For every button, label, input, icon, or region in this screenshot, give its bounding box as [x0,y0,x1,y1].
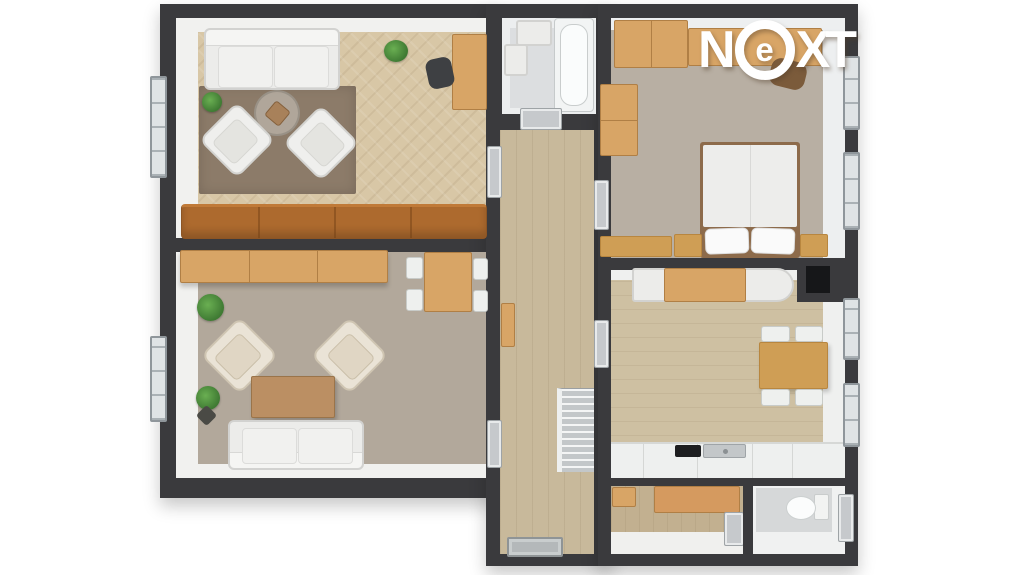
duvet-seam [750,145,751,227]
dining-chair [795,389,823,406]
bathroom-door [520,108,562,130]
kitchen-sink [703,444,746,458]
counter-seam [752,444,753,478]
next-logo: N e X T [698,20,852,80]
plant-icon [384,40,408,62]
dining-chair [795,326,823,342]
wall-closet-wc [743,486,753,554]
window-kitchen-right-2 [843,383,860,447]
bed-duvet [703,145,797,227]
armchair-seat [212,117,260,165]
dining-table [759,342,828,389]
table-chair [473,258,488,280]
counter-seam [792,444,793,478]
door-hall-bedroom [594,180,609,230]
sofa-cushion [298,428,353,464]
fireplace-unit [806,266,830,293]
room-closet [611,486,743,554]
closet-door [724,512,744,546]
table-chair [406,289,423,311]
toilet-bowl [786,496,816,520]
bed-pillow [705,227,750,255]
bathtub-basin [560,24,588,106]
armchair-seat [213,332,262,381]
bedroom-wardrobe [614,20,688,68]
sofa-seam [334,207,336,238]
wardrobe-seam [249,251,250,282]
kitchen-counter [611,442,845,478]
living-desk [452,34,487,110]
living-sofa [204,28,340,90]
closet-cabinet [612,487,636,507]
entrance-doormat [507,537,563,557]
bedroom-bench [600,236,672,257]
table-chair [473,290,488,312]
staircase [557,388,594,472]
room-lounge [176,252,486,478]
closet-cabinet [654,486,740,513]
room-wc [753,486,845,554]
logo-letter-x: X [796,20,826,80]
door-living-hall [487,146,502,198]
logo-letter-t: T [825,20,852,80]
sofa-back [206,30,338,46]
dining-chair [761,326,790,342]
toilet-tank [814,494,829,520]
logo-letter-n: N [698,20,731,80]
counter-seam [643,444,644,478]
sofa-cushion [218,46,273,88]
double-bed [700,142,800,258]
work-table [424,252,472,312]
dresser-seam [601,120,637,121]
cooktop [675,445,701,457]
sofa-seam [410,207,412,238]
faucet-icon [723,449,728,454]
bedroom-dresser [600,84,638,156]
dining-chair [761,389,790,406]
wardrobe-seam [317,251,318,282]
window-living-left [150,76,167,178]
wardrobe-seam [651,21,652,67]
door-hall-kitchen [594,320,609,368]
table-chair [406,257,423,279]
wc-door [838,494,854,542]
sideboard-wood-unit [664,268,746,302]
lounge-wardrobe [180,250,388,283]
washing-machine [504,44,528,76]
window-kitchen-right-1 [843,298,860,360]
plant-icon [202,92,222,112]
window-lounge-left [150,336,167,422]
bed-pillow [751,227,796,255]
floorplan-canvas: N e X T [0,0,1024,575]
sofa-cushion [242,428,297,464]
logo-ring-icon: e [735,20,795,80]
nightstand-right [800,234,828,257]
sofa-cushion [274,46,329,88]
door-lounge-hall [487,420,502,468]
bathroom-sink [516,20,552,46]
room-bathroom [502,18,596,114]
brown-leather-sofa [181,204,487,239]
plant-icon [197,294,224,321]
bathtub [554,18,594,112]
room-living [176,18,486,238]
nightstand-left [674,234,702,257]
hall-console-shelf [501,303,515,347]
window-bedroom-right-2 [843,152,860,230]
logo-letter-e: e [755,33,773,66]
sofa-seam [258,207,260,238]
lounge-sofa [228,420,364,470]
lounge-coffee-table [251,376,335,418]
armchair-seat [326,332,375,381]
armchair-seat [298,120,346,168]
